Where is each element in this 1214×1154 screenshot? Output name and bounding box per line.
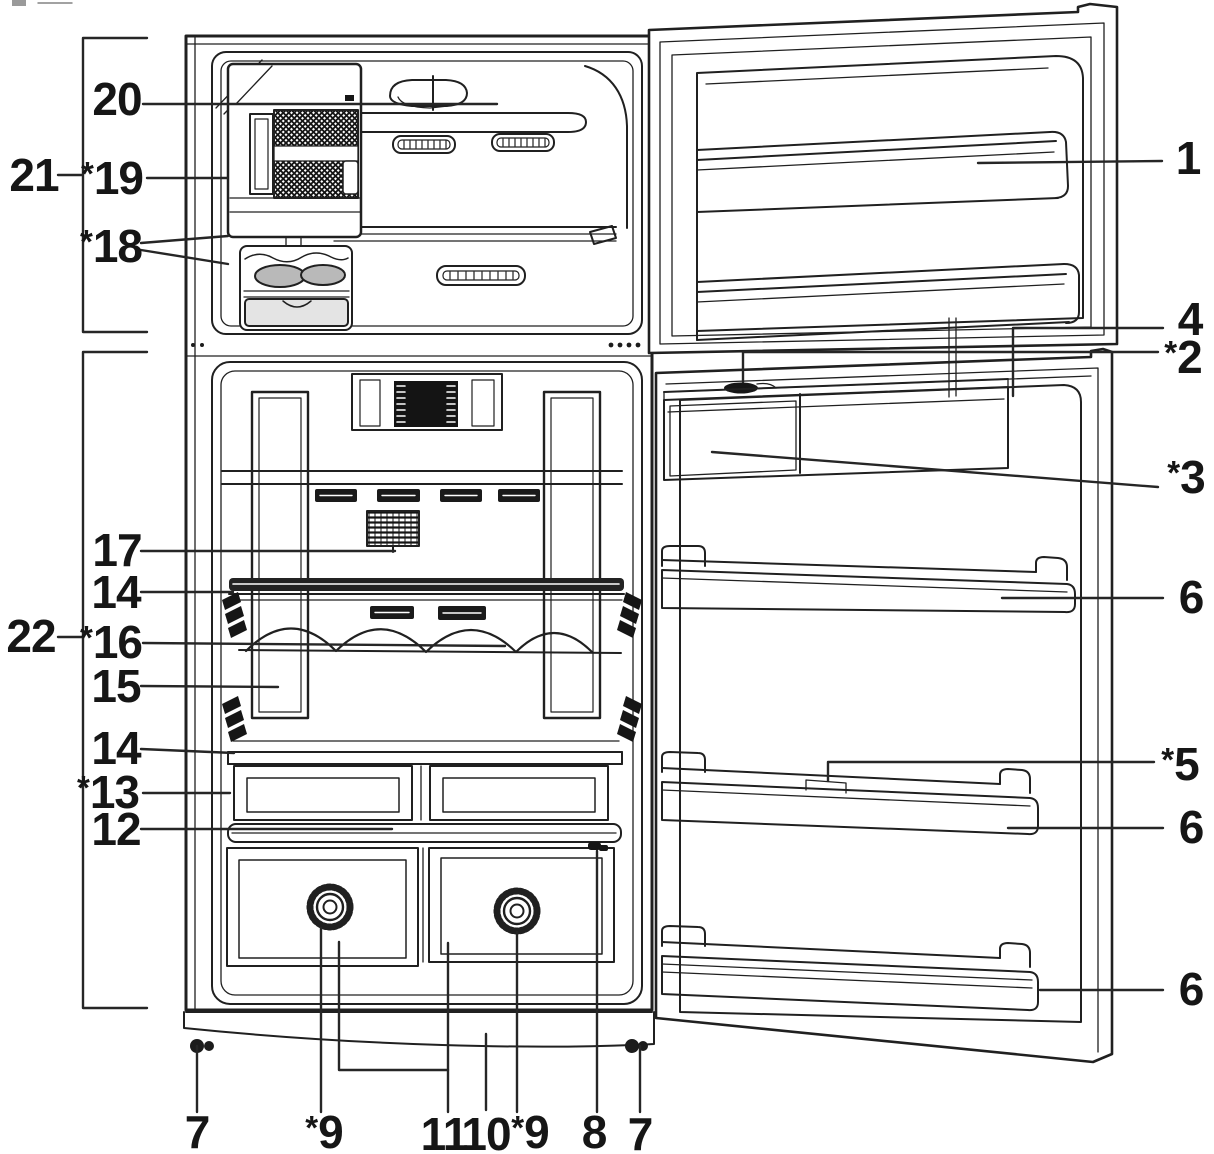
freezer-air-vent <box>393 136 455 153</box>
air-tower-left <box>252 392 308 718</box>
leader-line-15 <box>141 686 278 687</box>
shelf-support-bracket <box>222 696 247 742</box>
shelf-support-bracket <box>617 696 642 742</box>
print-artifact <box>12 0 72 6</box>
ice-trays-and-bin <box>240 246 352 330</box>
humidity-control-knob <box>310 887 350 927</box>
freezer-air-vent <box>492 134 554 151</box>
snack-drawer-left <box>234 766 412 820</box>
fresh-food-compartment <box>212 362 642 1004</box>
refrigerator-line-art <box>0 0 1214 1154</box>
kickplate <box>184 1012 654 1047</box>
refrigerator-parts-diagram: 2021*19*18171422*161514*131214*2*36*5667… <box>0 0 1214 1154</box>
shelf-support-bracket <box>617 592 642 638</box>
snack-drawer-right <box>430 766 608 820</box>
crisper-latch <box>588 842 608 851</box>
freezer-shelf <box>334 227 616 241</box>
air-tower-right <box>544 392 600 718</box>
leader-line-16 <box>143 643 505 646</box>
freezer-door <box>649 4 1117 353</box>
leveling-foot-right <box>625 1039 648 1053</box>
control-housing <box>352 374 502 430</box>
air-damper-control <box>367 511 419 552</box>
crisper-frame-rail <box>228 824 621 842</box>
shelf-support-bracket <box>222 592 247 638</box>
crisper-cover-shelf <box>228 741 622 764</box>
leveling-foot-left <box>190 1039 214 1053</box>
freezer-air-vent <box>437 266 525 285</box>
leader-line-22 <box>83 352 147 1008</box>
ice-maker <box>228 64 361 247</box>
humidity-control-knob <box>497 891 537 931</box>
freezer-top-shelf <box>340 113 586 132</box>
refrigerator-door <box>656 318 1112 1062</box>
leader-line-21 <box>83 38 147 332</box>
hinge-screw-dots <box>191 343 640 348</box>
